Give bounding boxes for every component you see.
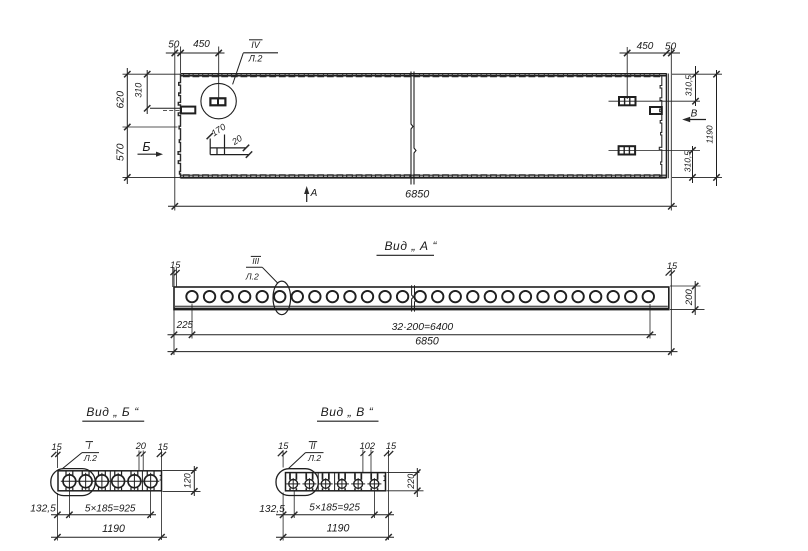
svg-text:200: 200 — [684, 289, 695, 307]
svg-text:6850: 6850 — [405, 189, 429, 201]
svg-text:Л.2: Л.2 — [245, 272, 259, 282]
svg-text:А: А — [310, 188, 318, 199]
svg-text:1190: 1190 — [327, 522, 350, 534]
svg-text:570: 570 — [115, 143, 127, 161]
svg-text:Вид „ В “: Вид „ В “ — [321, 405, 374, 419]
svg-text:132,5: 132,5 — [259, 504, 285, 515]
svg-text:В: В — [691, 109, 698, 120]
svg-text:Вид „ А “: Вид „ А “ — [384, 239, 437, 253]
svg-text:620: 620 — [114, 91, 126, 109]
svg-text:Л.2: Л.2 — [307, 453, 321, 463]
svg-text:III: III — [252, 256, 260, 266]
svg-text:15: 15 — [278, 441, 289, 451]
svg-text:15: 15 — [386, 441, 397, 451]
svg-text:220: 220 — [406, 474, 416, 490]
svg-text:310: 310 — [134, 83, 144, 98]
svg-text:310,5: 310,5 — [682, 151, 692, 173]
svg-text:120: 120 — [183, 473, 193, 488]
svg-text:132,5: 132,5 — [30, 504, 56, 515]
svg-text:50: 50 — [168, 39, 180, 50]
svg-text:15: 15 — [158, 442, 169, 452]
svg-text:5×185=925: 5×185=925 — [309, 503, 360, 514]
svg-text:15: 15 — [667, 261, 678, 271]
svg-text:1190: 1190 — [102, 523, 125, 535]
svg-text:102: 102 — [360, 441, 375, 451]
svg-text:Л.2: Л.2 — [248, 54, 263, 64]
svg-text:IV: IV — [251, 40, 261, 50]
svg-text:20: 20 — [135, 441, 147, 451]
svg-text:310,5: 310,5 — [684, 75, 694, 97]
svg-text:5×185=925: 5×185=925 — [85, 503, 136, 514]
svg-text:1190: 1190 — [705, 125, 715, 144]
svg-text:6850: 6850 — [415, 336, 439, 348]
svg-text:Б: Б — [142, 140, 150, 154]
svg-text:450: 450 — [637, 41, 654, 52]
svg-text:15: 15 — [170, 260, 181, 270]
svg-text:Вид „ Б “: Вид „ Б “ — [86, 405, 139, 419]
svg-text:II: II — [310, 441, 316, 451]
svg-text:Л.2: Л.2 — [83, 453, 97, 463]
svg-text:225: 225 — [176, 320, 194, 331]
svg-text:450: 450 — [193, 39, 210, 50]
svg-text:50: 50 — [665, 42, 677, 53]
svg-text:32·200=6400: 32·200=6400 — [392, 322, 454, 333]
